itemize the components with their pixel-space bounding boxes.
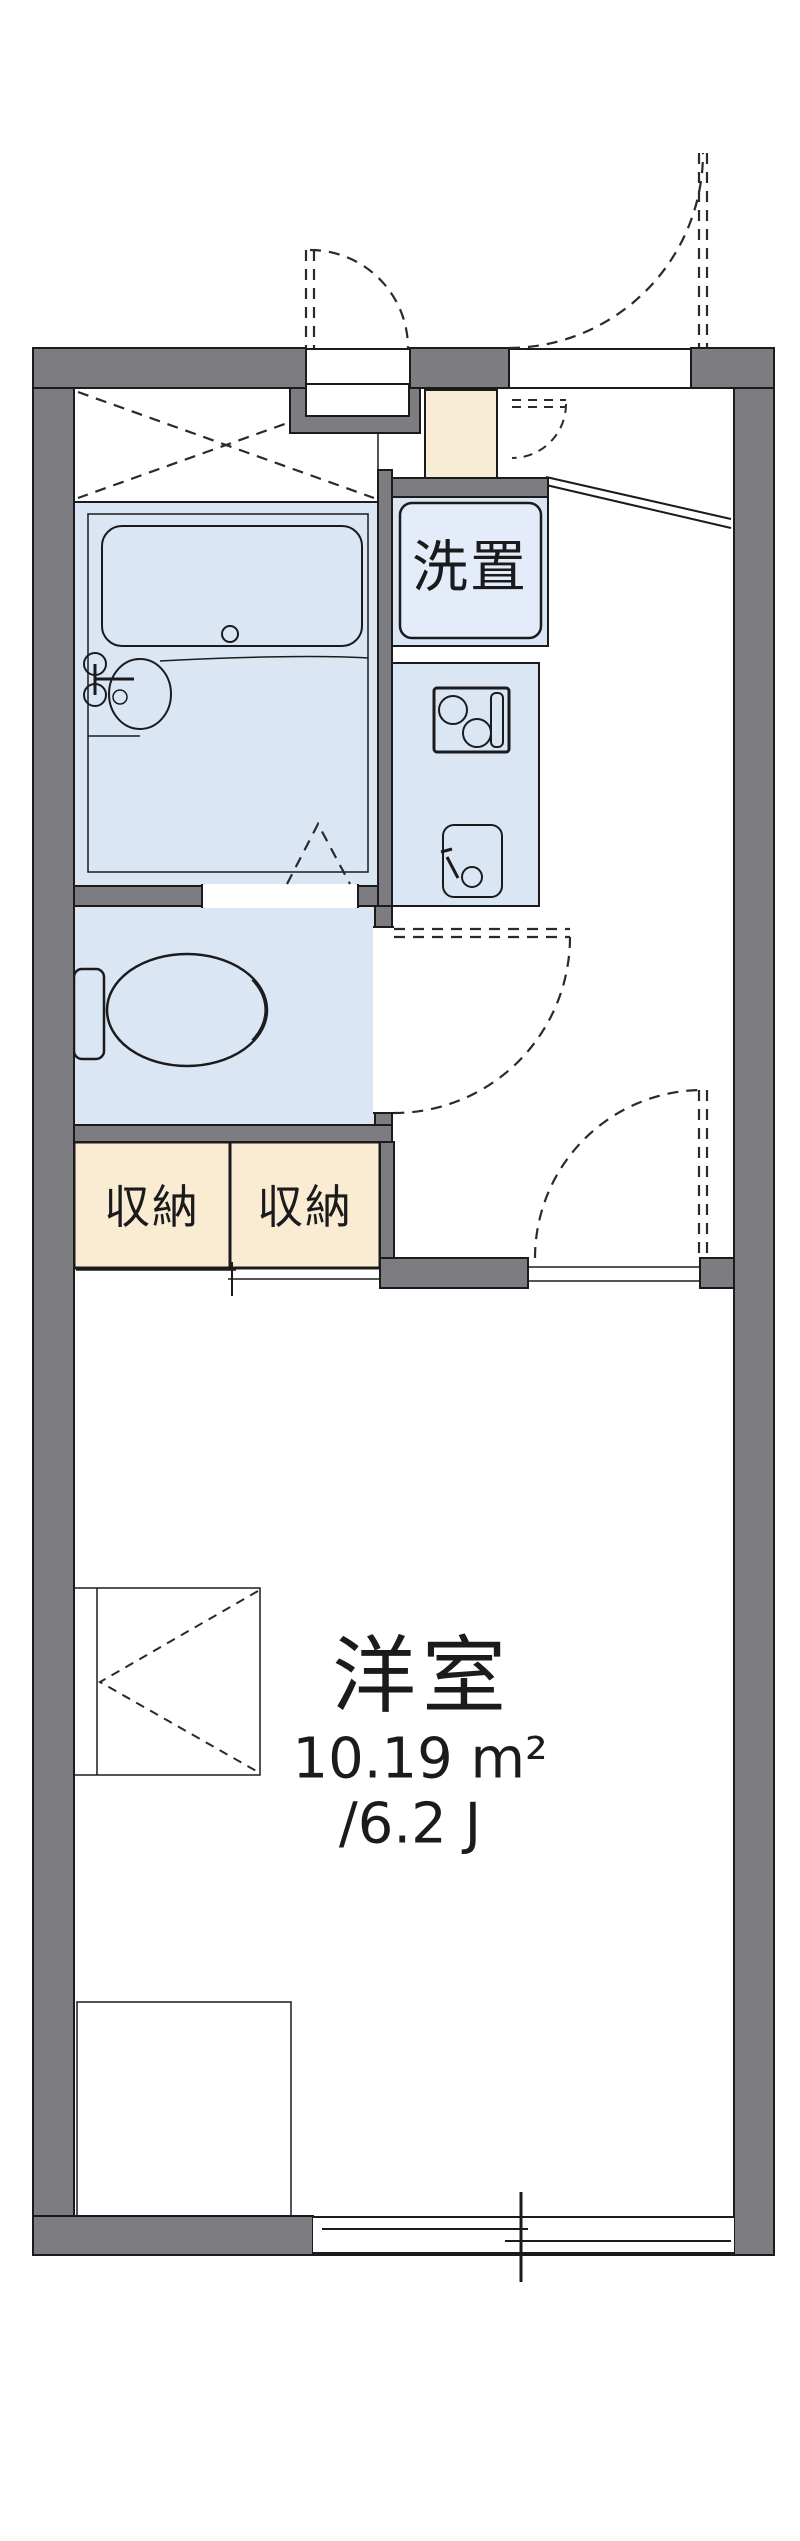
wall-left xyxy=(33,348,74,2255)
main-room-door xyxy=(535,1090,707,1258)
storage-left-label: 収納 xyxy=(104,1180,200,1234)
floor-plan: 洗置 収納 収納 洋室 10.19 m² /6.2 J xyxy=(0,0,800,2541)
entrance-niche-inset xyxy=(306,384,409,416)
main-room-area-jo: /6.2 J xyxy=(339,1792,481,1857)
main-room-label: 洋室 xyxy=(332,1627,512,1725)
toilet-bottom-wall xyxy=(74,1125,392,1142)
genkan-step-edge xyxy=(546,477,731,528)
bathroom-right-wall xyxy=(378,470,392,906)
entrance-door-small xyxy=(306,250,408,348)
wall-top-corner xyxy=(691,348,774,388)
main-room-closet xyxy=(72,1588,260,1775)
laundry-top-wall xyxy=(392,478,548,497)
wall-top-2 xyxy=(410,348,509,388)
toilet-right-wall xyxy=(373,906,394,1125)
toilet-room-floor xyxy=(74,906,375,1125)
bathroom-floor xyxy=(74,502,378,888)
wall-right xyxy=(734,348,774,2255)
bath-toilet-wall xyxy=(74,884,378,908)
entrance-openings xyxy=(290,349,734,433)
toilet-door xyxy=(394,929,570,1113)
entrance-genkan xyxy=(425,390,497,478)
storage-right-label: 収納 xyxy=(257,1180,353,1234)
floor-plan-canvas: 洗置 収納 収納 洋室 10.19 m² /6.2 J xyxy=(0,0,800,2541)
hall-bottom-wall xyxy=(380,1258,734,1288)
wall-bottom-left xyxy=(33,2216,313,2255)
main-room-area-m2: 10.19 m² xyxy=(292,1727,547,1792)
hall-door xyxy=(512,400,566,458)
bottom-left-counter xyxy=(77,2002,291,2216)
entrance-door-main xyxy=(509,153,707,348)
laundry-label: 洗置 xyxy=(412,536,528,601)
wall-top-1 xyxy=(33,348,306,388)
